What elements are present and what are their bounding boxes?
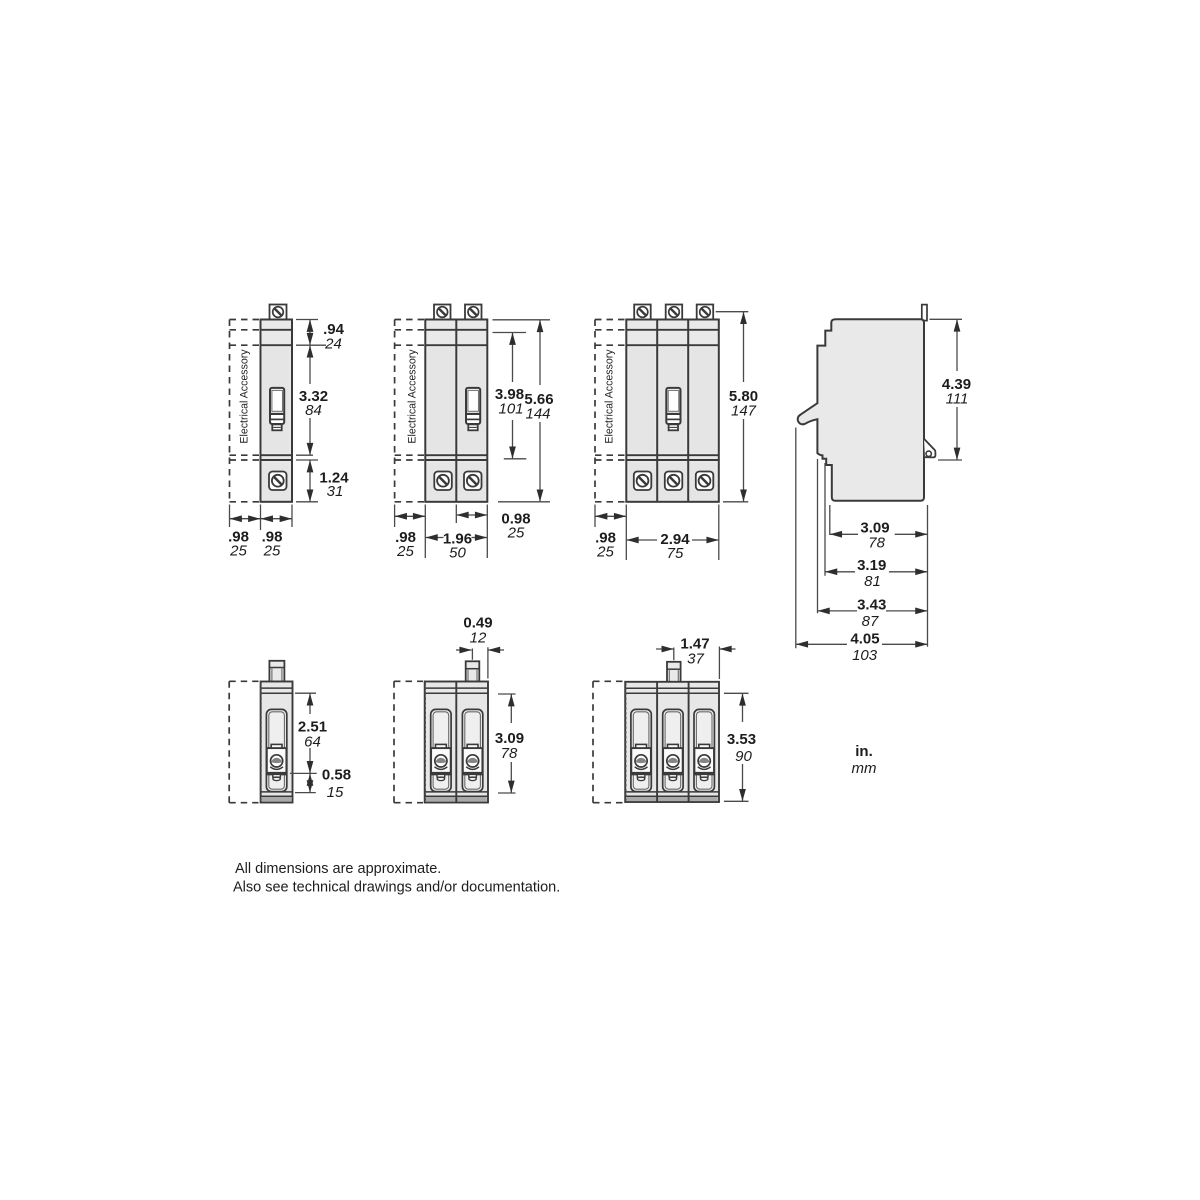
svg-text:3.53: 3.53 <box>727 731 756 748</box>
svg-text:78: 78 <box>501 745 518 762</box>
svg-text:64: 64 <box>304 734 321 751</box>
svg-text:87: 87 <box>862 613 879 630</box>
svg-text:15: 15 <box>327 784 344 801</box>
svg-text:84: 84 <box>305 402 322 419</box>
svg-text:144: 144 <box>525 406 550 423</box>
svg-text:81: 81 <box>864 573 881 590</box>
svg-text:75: 75 <box>667 545 684 562</box>
svg-text:3.43: 3.43 <box>857 596 886 613</box>
svg-text:111: 111 <box>946 391 969 408</box>
svg-text:in.: in. <box>855 743 873 760</box>
svg-text:mm: mm <box>852 760 877 777</box>
svg-text:25: 25 <box>229 543 247 560</box>
svg-text:0.58: 0.58 <box>322 767 351 784</box>
svg-text:90: 90 <box>735 748 752 765</box>
svg-text:50: 50 <box>449 545 466 562</box>
svg-text:Electrical Accessory: Electrical Accessory <box>406 349 418 444</box>
svg-text:All dimensions are approximate: All dimensions are approximate. <box>235 861 441 877</box>
svg-text:25: 25 <box>396 543 414 560</box>
svg-text:37: 37 <box>687 651 704 668</box>
svg-text:25: 25 <box>263 543 281 560</box>
svg-text:101: 101 <box>498 401 523 418</box>
svg-text:4.05: 4.05 <box>850 630 879 647</box>
svg-text:Electrical Accessory: Electrical Accessory <box>239 349 251 444</box>
svg-text:3.19: 3.19 <box>857 557 886 574</box>
svg-text:Also see technical drawings an: Also see technical drawings and/or docum… <box>233 880 560 896</box>
svg-text:25: 25 <box>596 544 614 561</box>
svg-text:25: 25 <box>507 525 525 542</box>
svg-text:12: 12 <box>470 630 487 647</box>
svg-text:Electrical Accessory: Electrical Accessory <box>604 349 616 444</box>
svg-text:31: 31 <box>327 483 344 500</box>
svg-text:78: 78 <box>868 534 885 551</box>
svg-text:147: 147 <box>731 403 757 420</box>
svg-text:24: 24 <box>324 336 342 353</box>
svg-text:103: 103 <box>852 647 878 664</box>
